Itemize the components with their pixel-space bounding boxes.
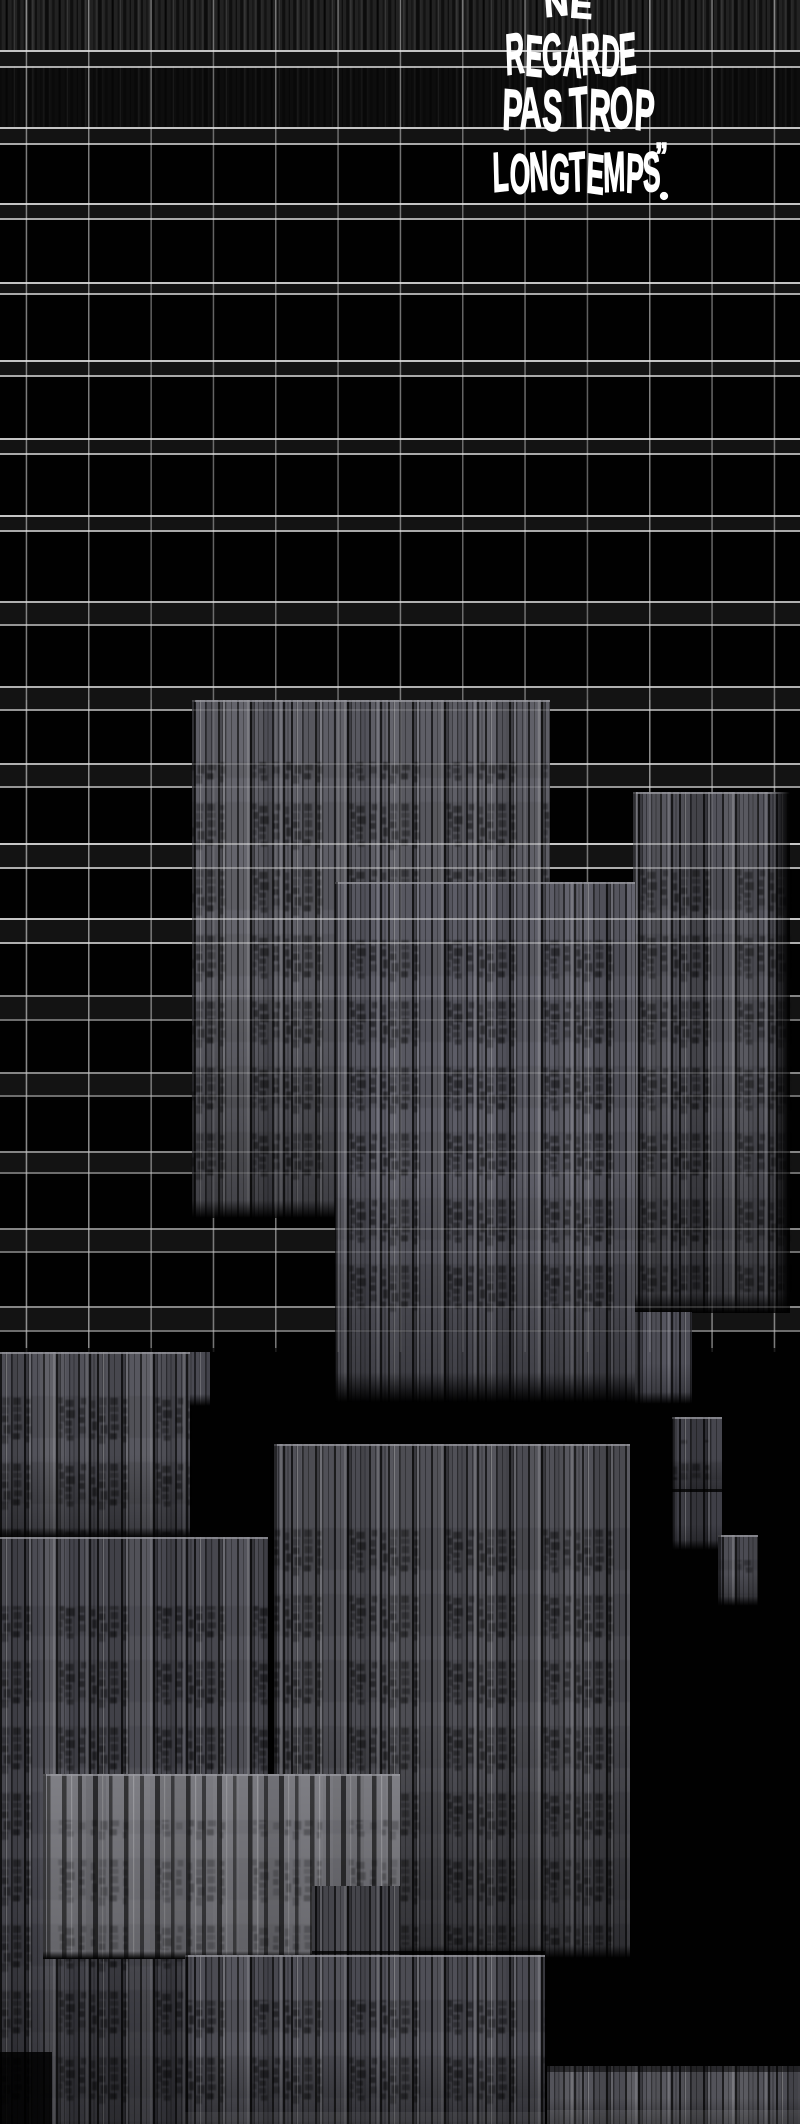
svg-text:LONGTEMPS: LONGTEMPS — [491, 141, 661, 207]
svg-text:”: ” — [655, 135, 668, 176]
